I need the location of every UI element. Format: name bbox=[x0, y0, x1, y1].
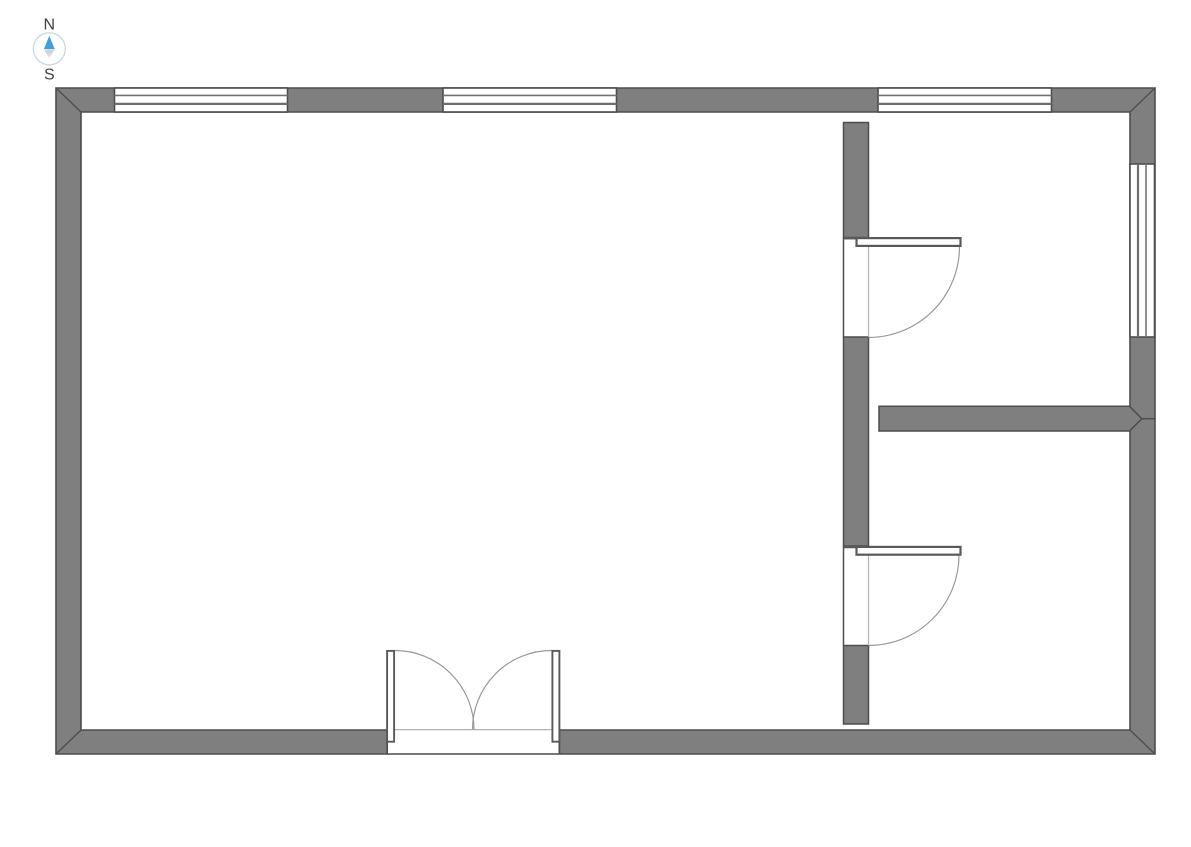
svg-text:N: N bbox=[44, 17, 56, 34]
svg-text:S: S bbox=[44, 67, 55, 84]
